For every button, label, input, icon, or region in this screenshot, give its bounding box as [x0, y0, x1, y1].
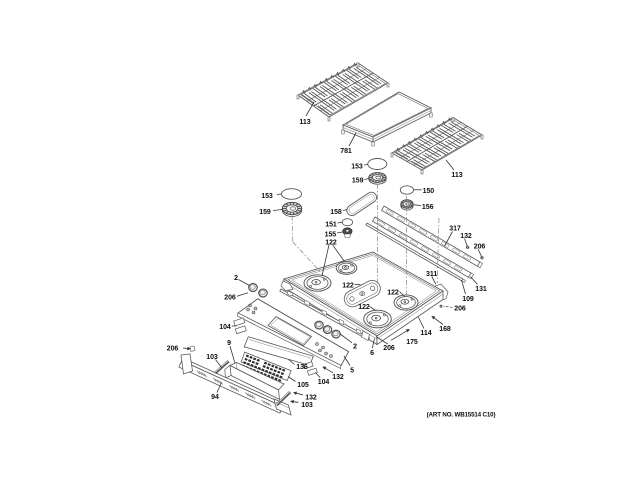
svg-text:159: 159 — [259, 209, 271, 216]
svg-text:2: 2 — [353, 344, 357, 351]
svg-text:114: 114 — [420, 330, 431, 337]
svg-text:153: 153 — [261, 193, 273, 200]
svg-text:206: 206 — [474, 244, 486, 251]
svg-text:206: 206 — [454, 306, 466, 313]
svg-text:(ART NO. WB15514 C10): (ART NO. WB15514 C10) — [427, 412, 496, 419]
svg-text:109: 109 — [462, 296, 474, 303]
svg-text:131: 131 — [475, 286, 487, 293]
svg-text:104: 104 — [219, 324, 231, 331]
svg-text:2: 2 — [234, 275, 238, 282]
svg-text:153: 153 — [351, 163, 363, 170]
svg-text:105: 105 — [297, 382, 309, 389]
svg-text:122: 122 — [358, 304, 370, 311]
svg-text:9: 9 — [227, 340, 231, 347]
svg-text:781: 781 — [340, 148, 352, 155]
svg-text:103: 103 — [206, 354, 218, 361]
svg-text:156: 156 — [422, 204, 434, 211]
svg-text:151: 151 — [325, 221, 337, 228]
svg-text:206: 206 — [167, 346, 179, 353]
svg-text:206: 206 — [224, 295, 236, 302]
svg-text:136: 136 — [296, 364, 308, 371]
svg-text:103: 103 — [301, 402, 313, 409]
svg-text:122: 122 — [342, 283, 354, 290]
svg-text:94: 94 — [211, 394, 219, 401]
svg-text:158: 158 — [330, 209, 342, 216]
svg-text:113: 113 — [451, 172, 462, 179]
svg-text:104: 104 — [318, 379, 330, 386]
svg-text:113: 113 — [299, 119, 310, 126]
svg-text:311: 311 — [426, 271, 437, 278]
svg-text:122: 122 — [387, 289, 399, 296]
svg-text:150: 150 — [423, 188, 435, 195]
svg-text:159: 159 — [352, 178, 364, 185]
svg-text:6: 6 — [370, 350, 374, 357]
svg-text:317: 317 — [449, 226, 461, 233]
svg-text:206: 206 — [383, 345, 395, 352]
svg-text:155: 155 — [325, 232, 337, 239]
svg-text:132: 132 — [460, 233, 472, 240]
svg-text:122: 122 — [325, 239, 337, 246]
svg-text:132: 132 — [332, 374, 344, 381]
svg-text:175: 175 — [406, 339, 418, 346]
svg-text:5: 5 — [350, 368, 354, 375]
svg-text:168: 168 — [439, 326, 451, 333]
svg-text:132: 132 — [305, 395, 317, 402]
